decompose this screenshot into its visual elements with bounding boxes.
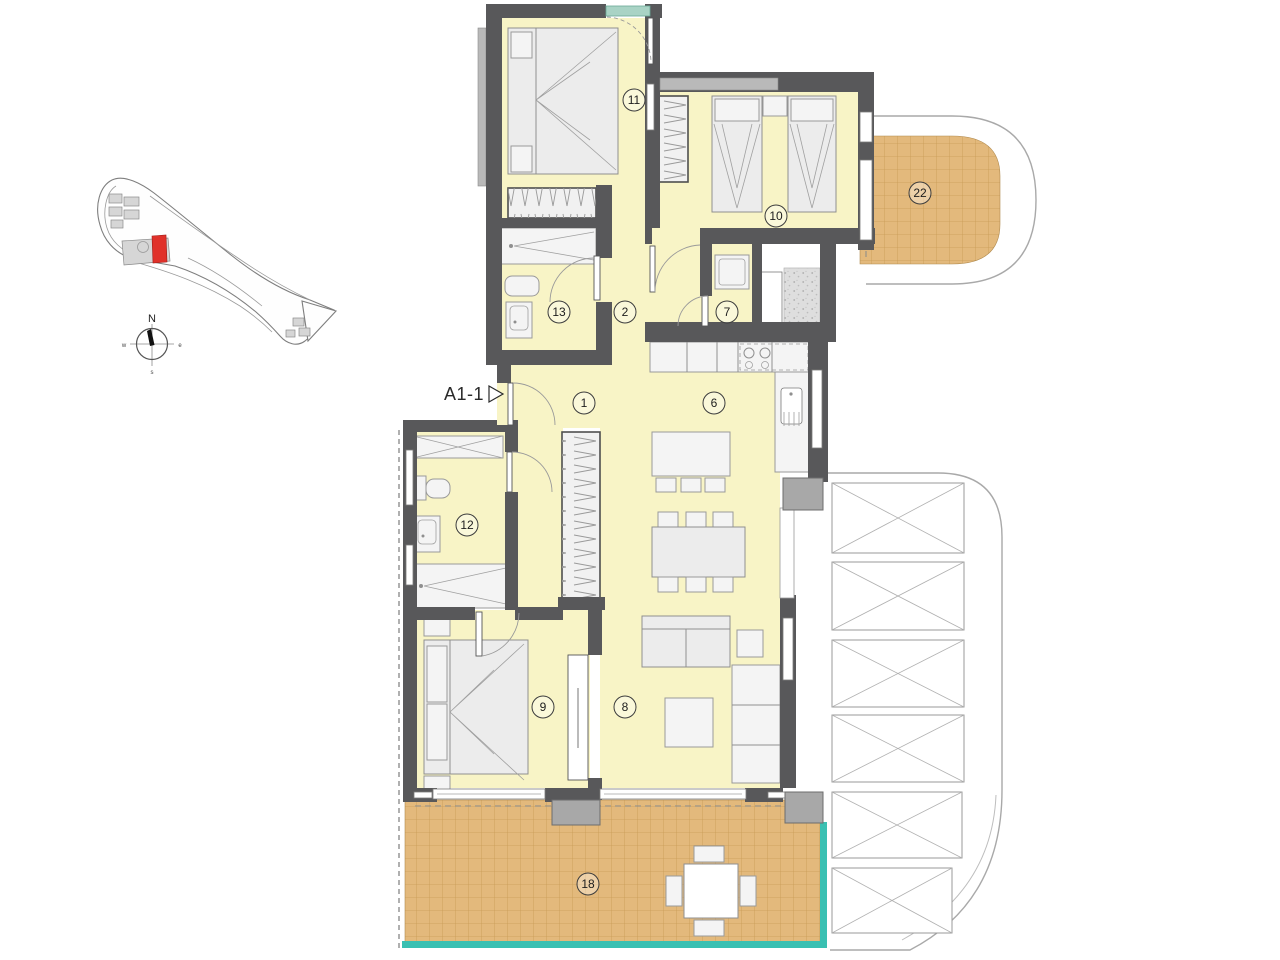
room-label-8: 8 xyxy=(614,696,636,718)
svg-text:6: 6 xyxy=(711,396,718,410)
room-11-bed xyxy=(508,28,618,174)
kitchen-island xyxy=(652,432,730,492)
dining-table-set xyxy=(652,512,745,592)
svg-text:22: 22 xyxy=(913,186,927,200)
room-label-18: 18 xyxy=(577,873,599,895)
compass-south-label: s xyxy=(151,370,154,376)
coffee-table xyxy=(665,698,713,747)
room-label-22: 22 xyxy=(909,182,931,204)
corridor-wardrobe xyxy=(562,432,600,600)
room-13-sink xyxy=(506,302,532,338)
svg-text:9: 9 xyxy=(540,700,547,714)
terrace-sliding-doors xyxy=(414,789,786,799)
room-label-13: 13 xyxy=(548,301,570,323)
room-label-2: 2 xyxy=(614,301,636,323)
room-10-bed-2 xyxy=(788,96,836,212)
room-10-wardrobe xyxy=(658,96,688,182)
room-13-shower xyxy=(500,228,596,264)
terrace-18 xyxy=(402,800,827,948)
unit-label: A1-1 xyxy=(444,384,503,404)
kitchen-sink xyxy=(781,388,802,426)
compass-needle xyxy=(147,329,155,346)
room-10-bed-1 xyxy=(712,96,762,212)
svg-text:13: 13 xyxy=(552,305,566,319)
dining-glass-door xyxy=(780,508,794,598)
room-10-window xyxy=(860,112,872,142)
room-10-high-window xyxy=(660,78,778,90)
adjacent-terrace-structure xyxy=(827,473,1002,950)
terrace-22 xyxy=(860,116,1036,284)
tv-sideboard xyxy=(732,665,780,783)
room-label-6: 6 xyxy=(703,392,725,414)
room-12-shower xyxy=(412,564,510,608)
svg-text:11: 11 xyxy=(628,93,641,107)
room-label-7: 7 xyxy=(716,301,738,323)
terrace-pillar-left xyxy=(552,800,600,825)
floor-plan-drawing: N w e s xyxy=(0,0,1280,960)
room-11-wardrobe xyxy=(508,188,596,218)
room-12-bathtub xyxy=(413,436,503,458)
glass-balustrade-right xyxy=(820,822,827,948)
unit-label-text: A1-1 xyxy=(444,384,484,404)
room-12-wc xyxy=(416,476,450,500)
highlighted-unit-marker xyxy=(152,235,167,263)
patio-door xyxy=(760,272,782,330)
entry-lintel xyxy=(606,6,650,16)
room-13-wc xyxy=(505,276,539,296)
svg-text:1: 1 xyxy=(581,396,588,410)
living-window xyxy=(783,618,793,680)
sliding-door-room-8 xyxy=(568,655,588,780)
compass: N w e s xyxy=(121,313,183,376)
room-label-11: 11 xyxy=(623,89,645,111)
room-10-nightstand xyxy=(763,96,787,116)
site-plan xyxy=(98,178,336,344)
room-label-10: 10 xyxy=(765,205,787,227)
room-12-sink xyxy=(414,516,440,552)
svg-text:7: 7 xyxy=(724,305,731,319)
svg-text:18: 18 xyxy=(581,877,595,891)
pergola-x-panels xyxy=(832,483,964,933)
svg-text:10: 10 xyxy=(769,209,783,223)
room-label-12: 12 xyxy=(456,514,478,536)
room-7-washing-machine xyxy=(715,255,749,289)
kitchen-window xyxy=(812,370,822,448)
room-label-1: 1 xyxy=(573,392,595,414)
terrace-pillar-right xyxy=(785,792,823,823)
compass-west-label: w xyxy=(121,343,127,349)
facade-pillar xyxy=(783,478,823,510)
floor-plan-page: N w e s xyxy=(0,0,1280,960)
svg-text:12: 12 xyxy=(460,518,474,532)
glass-balustrade-bottom xyxy=(402,941,827,948)
compass-north-label: N xyxy=(148,313,156,325)
svg-text:8: 8 xyxy=(622,700,629,714)
svg-text:2: 2 xyxy=(622,305,629,319)
compass-east-label: e xyxy=(178,343,182,349)
room-label-9: 9 xyxy=(532,696,554,718)
room-10-terrace-door xyxy=(860,160,872,240)
